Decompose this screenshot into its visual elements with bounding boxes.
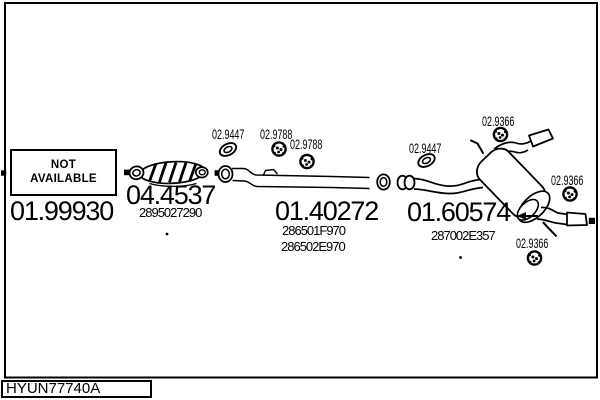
centre-pipe-drawing <box>219 166 390 190</box>
not-available-line1: NOT <box>51 159 76 172</box>
centre-pipe-code[interactable]: 01.40272 <box>275 198 378 225</box>
centre-pipe-oem-number-2: 286502E970 <box>281 240 345 253</box>
diagram-code: HYUN77740A <box>6 380 100 397</box>
gasket-rear-code[interactable]: 02.9447 <box>409 141 441 155</box>
exhaust-diagram-canvas: NOT AVAILABLE 01.99930 04.4537 289502729… <box>0 0 600 400</box>
catalytic-converter-oem-number: 2895027290 <box>139 206 201 219</box>
not-available-line2: AVAILABLE <box>30 173 97 186</box>
rear-silencer-oem-number: 287002E357 <box>431 229 495 242</box>
gasket-centre-code[interactable]: 02.9447 <box>212 127 244 141</box>
not-available-box: NOT AVAILABLE <box>10 149 117 196</box>
diagram-code-box: HYUN77740A <box>1 380 152 398</box>
mount-rear-top-code[interactable]: 02.9366 <box>482 114 514 128</box>
front-pipe-code[interactable]: 01.99930 <box>10 198 113 225</box>
rubber-mount-icon <box>528 251 541 264</box>
centre-pipe-oem-number-1: 286501F970 <box>282 224 345 237</box>
mount-centre-upper-code[interactable]: 02.9788 <box>260 127 292 141</box>
mount-centre-lower-code[interactable]: 02.9788 <box>290 137 322 151</box>
mount-rear-right-code[interactable]: 02.9366 <box>551 173 583 187</box>
rubber-mount-icon <box>494 128 507 141</box>
rubber-mount-icon <box>300 155 313 168</box>
gasket-icon <box>218 140 239 158</box>
rubber-mount-icon <box>272 142 285 155</box>
rubber-mount-icon <box>563 187 576 200</box>
mount-rear-bottom-code[interactable]: 02.9366 <box>516 236 548 250</box>
rear-silencer-code[interactable]: 01.60574 <box>407 199 510 226</box>
